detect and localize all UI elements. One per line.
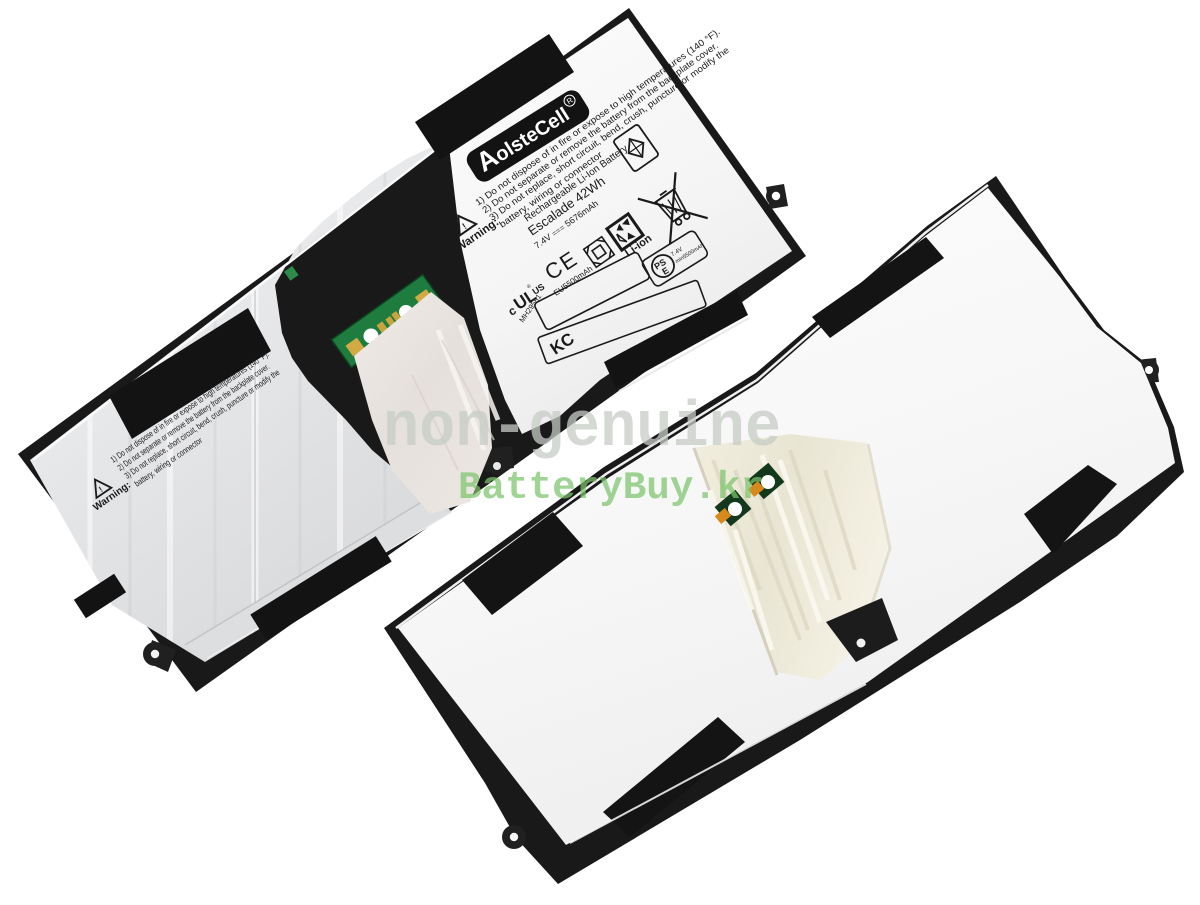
svg-text:BatteryBuy.kr: BatteryBuy.kr	[458, 466, 764, 510]
svg-text:non-genuine: non-genuine	[383, 393, 781, 465]
